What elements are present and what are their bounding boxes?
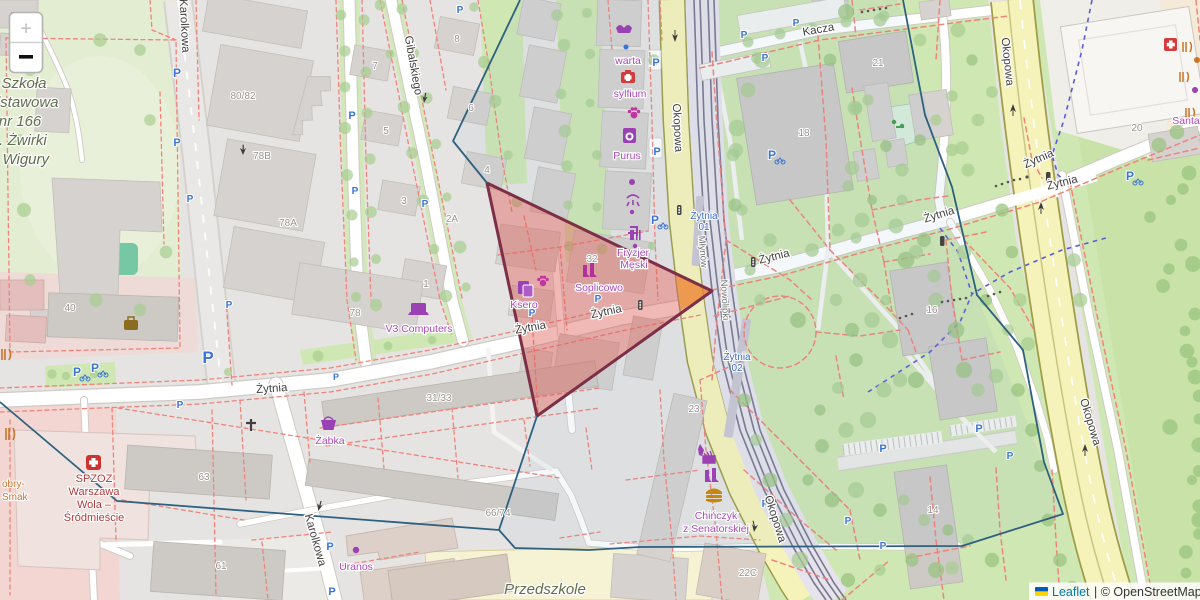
svg-text:Soplicowo: Soplicowo xyxy=(575,282,623,294)
svg-text:Żabka: Żabka xyxy=(315,434,344,447)
svg-text:Szkoła: Szkoła xyxy=(1,75,46,92)
svg-text:P: P xyxy=(333,372,339,382)
svg-text:z Senatorskiej: z Senatorskiej xyxy=(683,523,749,535)
svg-text:02: 02 xyxy=(731,363,743,374)
svg-text:66/74: 66/74 xyxy=(485,508,510,519)
svg-text:P: P xyxy=(173,66,181,80)
svg-text:Żytnia: Żytnia xyxy=(690,209,718,222)
svg-text:61: 61 xyxy=(215,561,227,572)
svg-text:P: P xyxy=(173,137,180,149)
svg-text:22C: 22C xyxy=(739,568,757,579)
svg-text:Purus: Purus xyxy=(613,150,640,162)
svg-text:sylfium: sylfium xyxy=(614,88,647,100)
svg-text:4: 4 xyxy=(484,165,490,176)
svg-text:Żytnia: Żytnia xyxy=(256,381,289,396)
svg-text:P: P xyxy=(762,53,769,64)
svg-text:P: P xyxy=(1126,169,1134,183)
svg-text:Wola –: Wola – xyxy=(77,499,112,511)
svg-text:P: P xyxy=(328,586,335,598)
svg-text:01: 01 xyxy=(698,222,710,233)
svg-text:P: P xyxy=(73,365,81,379)
svg-text:32: 32 xyxy=(586,254,598,265)
svg-text:P: P xyxy=(1007,451,1014,462)
svg-text:40: 40 xyxy=(64,303,76,314)
svg-text:P: P xyxy=(653,146,660,158)
svg-text:Żytnia: Żytnia xyxy=(723,350,751,363)
svg-text:P: P xyxy=(457,5,464,16)
svg-text:78B: 78B xyxy=(253,151,271,162)
svg-text:Ksero: Ksero xyxy=(510,299,538,311)
svg-text:Smak: Smak xyxy=(2,492,29,503)
svg-text:Fryzjer: Fryzjer xyxy=(617,247,650,259)
svg-text:Okopowa: Okopowa xyxy=(670,103,685,153)
svg-text:1: 1 xyxy=(423,279,429,290)
svg-text:Podstawowa: Podstawowa xyxy=(0,94,59,111)
svg-text:3: 3 xyxy=(401,196,407,207)
svg-text:P: P xyxy=(879,443,886,455)
svg-text:| © OpenStreetMap: | © OpenStreetMap xyxy=(1094,585,1200,599)
svg-text:8: 8 xyxy=(454,34,460,45)
svg-text:P: P xyxy=(768,148,776,162)
svg-text:P: P xyxy=(352,186,359,197)
svg-text:Warszawa: Warszawa xyxy=(69,486,121,498)
svg-text:23: 23 xyxy=(688,404,700,415)
svg-text:P: P xyxy=(845,516,852,527)
svg-text:warta: warta xyxy=(614,55,641,67)
svg-text:Śródmieście: Śródmieście xyxy=(64,511,125,524)
svg-text:P: P xyxy=(326,541,333,553)
svg-text:nr 166: nr 166 xyxy=(0,113,42,130)
svg-text:P: P xyxy=(202,348,213,367)
svg-text:78A: 78A xyxy=(279,218,297,229)
svg-text:P: P xyxy=(348,110,355,122)
svg-text:31/33: 31/33 xyxy=(426,393,451,404)
svg-text:i Wigury: i Wigury xyxy=(0,151,51,168)
svg-text:Chińczyk: Chińczyk xyxy=(695,510,738,522)
svg-text:SPZOZ: SPZOZ xyxy=(76,473,113,485)
svg-text:V3 Computers: V3 Computers xyxy=(385,323,452,335)
svg-text:+: + xyxy=(20,19,31,40)
svg-text:20: 20 xyxy=(1131,123,1143,134)
svg-text:18: 18 xyxy=(798,128,810,139)
svg-text:16: 16 xyxy=(926,305,938,316)
svg-text:Uranos: Uranos xyxy=(339,561,373,573)
svg-text:P: P xyxy=(880,541,887,552)
svg-text:P: P xyxy=(177,400,184,411)
svg-text:80/82: 80/82 xyxy=(230,91,255,102)
svg-text:5: 5 xyxy=(383,126,389,137)
svg-text:Leaflet: Leaflet xyxy=(1052,585,1090,599)
svg-text:P: P xyxy=(652,57,659,69)
svg-text:78: 78 xyxy=(349,308,361,319)
svg-text:21: 21 xyxy=(872,58,884,69)
svg-text:6: 6 xyxy=(468,103,474,114)
svg-text:P: P xyxy=(651,213,659,227)
svg-text:P: P xyxy=(91,361,99,375)
svg-text:Przedszkole: Przedszkole xyxy=(504,581,586,598)
svg-text:P: P xyxy=(741,30,748,41)
svg-text:7: 7 xyxy=(372,61,378,72)
svg-text:P: P xyxy=(793,18,800,29)
svg-text:Nowolipki: Nowolipki xyxy=(718,279,731,320)
svg-text:P: P xyxy=(422,199,429,210)
svg-text:Męski: Męski xyxy=(620,259,647,271)
svg-text:P: P xyxy=(187,194,194,205)
svg-text:P: P xyxy=(595,294,602,305)
svg-text:im. Żwirki: im. Żwirki xyxy=(0,132,47,149)
svg-text:14: 14 xyxy=(927,505,939,516)
svg-text:P: P xyxy=(226,300,233,311)
svg-text:P: P xyxy=(975,423,982,435)
svg-text:obry-: obry- xyxy=(2,479,25,490)
svg-text:2A: 2A xyxy=(446,214,459,225)
svg-text:Santa: Santa xyxy=(1172,115,1200,127)
svg-text:63: 63 xyxy=(198,472,210,483)
